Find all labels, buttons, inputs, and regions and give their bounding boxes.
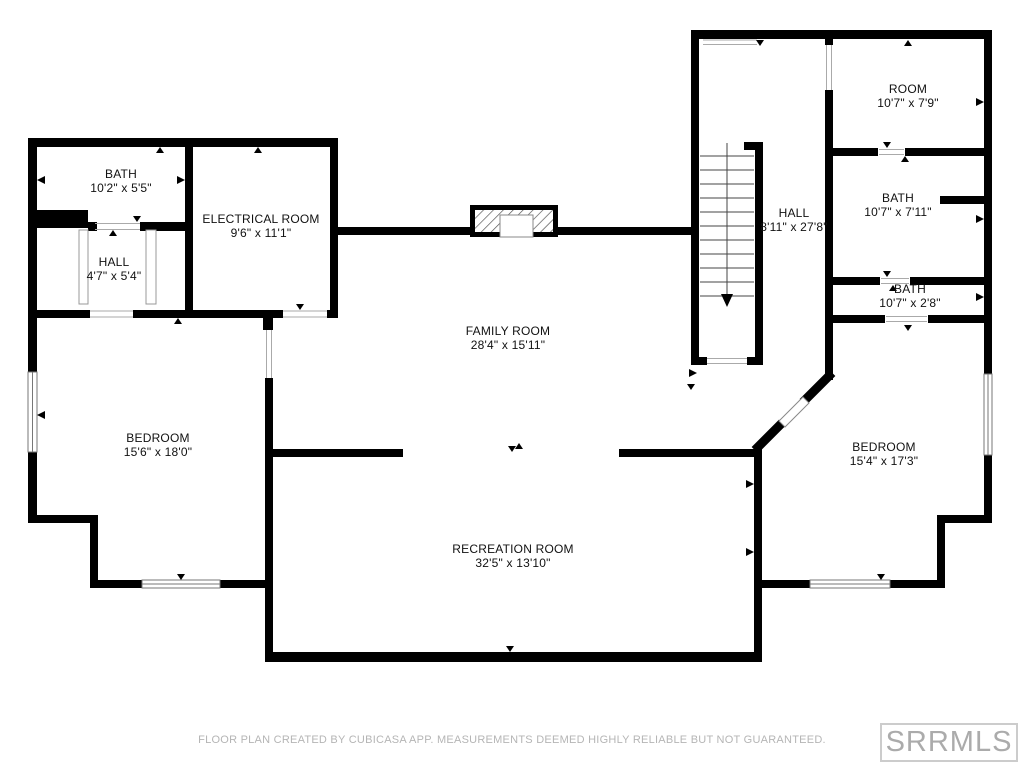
room-name: BATH — [879, 282, 941, 296]
footer-disclaimer: FLOOR PLAN CREATED BY CUBICASA APP. MEAS… — [0, 734, 1024, 746]
room-dimensions: 10'7" x 2'8" — [879, 296, 941, 310]
window — [142, 580, 220, 588]
room-dimensions: 4'7" x 5'4" — [87, 269, 142, 283]
room-label-bath-3: BATH 10'7" x 2'8" — [879, 282, 941, 310]
window — [984, 374, 992, 455]
room-name: BEDROOM — [850, 440, 918, 454]
mls-logo-text: SRRMLS — [886, 728, 1013, 757]
mls-logo: SRRMLS — [880, 723, 1018, 762]
room-label-family-room: FAMILY ROOM 28'4" x 15'11" — [466, 324, 550, 352]
room-name: BATH — [90, 167, 152, 181]
room-label-electrical-room: ELECTRICAL ROOM 9'6" x 11'1" — [202, 212, 319, 240]
room-label-bedroom-left: BEDROOM 15'6" x 18'0" — [124, 431, 192, 459]
room-name: BEDROOM — [124, 431, 192, 445]
room-name: HALL — [87, 255, 142, 269]
room-name: ELECTRICAL ROOM — [202, 212, 319, 226]
room-label-recreation-room: RECREATION ROOM 32'5" x 13'10" — [452, 542, 573, 570]
room-label-bedroom-right: BEDROOM 15'4" x 17'3" — [850, 440, 918, 468]
floorplan-drawing — [0, 0, 1024, 768]
room-dimensions: 15'6" x 18'0" — [124, 445, 192, 459]
window — [28, 372, 37, 452]
floorplan-page: BATH 10'2" x 5'5" ELECTRICAL ROOM 9'6" x… — [0, 0, 1024, 768]
room-label-bath-1: BATH 10'2" x 5'5" — [90, 167, 152, 195]
room-dimensions: 10'2" x 5'5" — [90, 181, 152, 195]
room-dimensions: 10'7" x 7'9" — [877, 96, 939, 110]
room-dimensions: 32'5" x 13'10" — [452, 556, 573, 570]
room-dimensions: 28'4" x 15'11" — [466, 338, 550, 352]
room-name: HALL — [760, 206, 828, 220]
room-dimensions: 8'11" x 27'8" — [760, 220, 828, 234]
room-label-bath-2: BATH 10'7" x 7'11" — [864, 191, 932, 219]
room-dimensions: 9'6" x 11'1" — [202, 226, 319, 240]
room-label-hall-small: HALL 4'7" x 5'4" — [87, 255, 142, 283]
room-label-hall-stairs: HALL 8'11" x 27'8" — [760, 206, 828, 234]
room-name: FAMILY ROOM — [466, 324, 550, 338]
room-dimensions: 15'4" x 17'3" — [850, 454, 918, 468]
window — [810, 580, 890, 588]
staircase — [700, 143, 754, 307]
room-name: BATH — [864, 191, 932, 205]
room-dimensions: 10'7" x 7'11" — [864, 205, 932, 219]
fireplace-icon — [470, 205, 558, 237]
room-name: RECREATION ROOM — [452, 542, 573, 556]
room-label-room: ROOM 10'7" x 7'9" — [877, 82, 939, 110]
diagonal-wall — [758, 376, 829, 447]
stairs-down-arrow — [721, 294, 733, 307]
door-leaf — [779, 397, 809, 427]
room-name: ROOM — [877, 82, 939, 96]
